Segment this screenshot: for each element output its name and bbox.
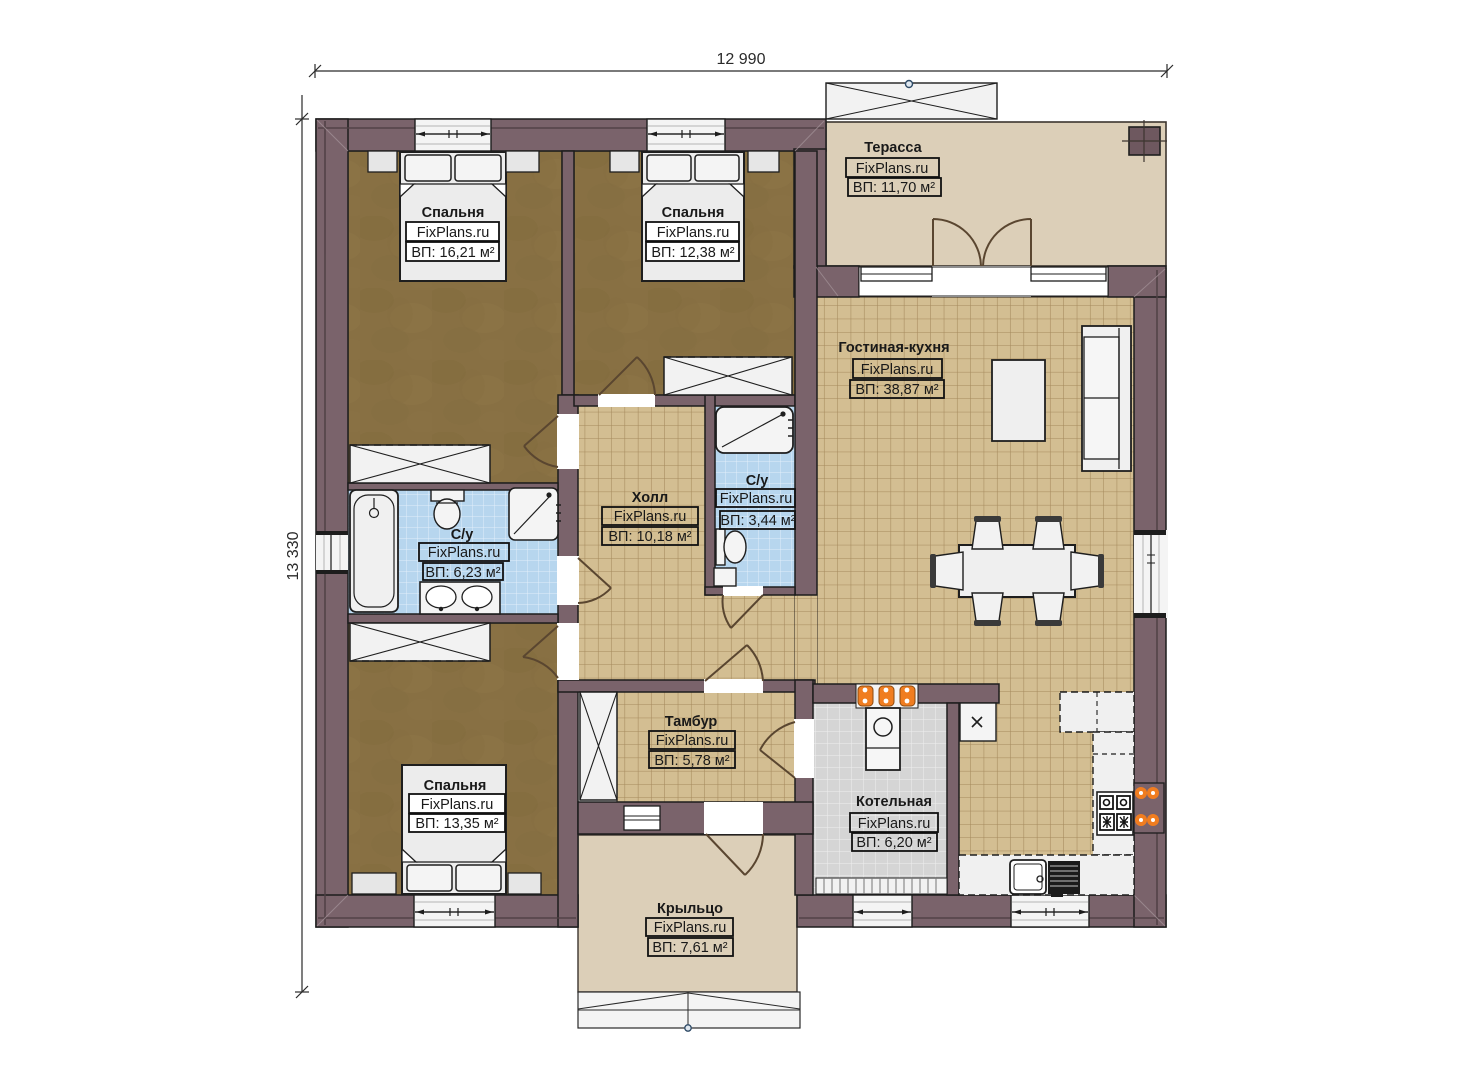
svg-text:ВП: 6,20 м²: ВП: 6,20 м² bbox=[856, 835, 931, 851]
svg-text:Холл: Холл bbox=[632, 490, 668, 506]
svg-text:ВП: 7,61 м²: ВП: 7,61 м² bbox=[652, 940, 727, 956]
svg-text:FixPlans.ru: FixPlans.ru bbox=[421, 797, 494, 813]
svg-text:FixPlans.ru: FixPlans.ru bbox=[856, 161, 929, 177]
svg-text:ВП: 3,44 м²: ВП: 3,44 м² bbox=[720, 513, 795, 529]
svg-text:ВП: 10,18 м²: ВП: 10,18 м² bbox=[608, 529, 691, 545]
svg-text:ВП: 16,21 м²: ВП: 16,21 м² bbox=[411, 245, 494, 261]
svg-text:FixPlans.ru: FixPlans.ru bbox=[861, 362, 934, 378]
svg-text:FixPlans.ru: FixPlans.ru bbox=[428, 545, 501, 561]
svg-text:ВП: 12,38 м²: ВП: 12,38 м² bbox=[651, 245, 734, 261]
svg-text:FixPlans.ru: FixPlans.ru bbox=[858, 816, 931, 832]
svg-text:FixPlans.ru: FixPlans.ru bbox=[417, 225, 490, 241]
svg-text:FixPlans.ru: FixPlans.ru bbox=[720, 491, 793, 507]
svg-text:ВП: 13,35 м²: ВП: 13,35 м² bbox=[415, 816, 498, 832]
svg-text:С/у: С/у bbox=[451, 527, 474, 543]
svg-text:FixPlans.ru: FixPlans.ru bbox=[656, 733, 729, 749]
svg-text:Спальня: Спальня bbox=[662, 205, 725, 221]
svg-text:Гостиная-кухня: Гостиная-кухня bbox=[838, 340, 949, 356]
svg-text:ВП: 11,70 м²: ВП: 11,70 м² bbox=[853, 180, 935, 196]
svg-text:Крыльцо: Крыльцо bbox=[657, 901, 723, 917]
svg-text:Спальня: Спальня bbox=[424, 778, 487, 794]
svg-text:FixPlans.ru: FixPlans.ru bbox=[657, 225, 730, 241]
svg-text:С/у: С/у bbox=[746, 473, 769, 489]
svg-text:ВП: 5,78 м²: ВП: 5,78 м² bbox=[654, 753, 729, 769]
svg-text:FixPlans.ru: FixPlans.ru bbox=[614, 509, 687, 525]
svg-text:Тамбур: Тамбур bbox=[665, 714, 718, 730]
svg-text:FixPlans.ru: FixPlans.ru bbox=[654, 920, 727, 936]
svg-text:Терасса: Терасса bbox=[864, 140, 922, 156]
svg-text:13 330: 13 330 bbox=[285, 531, 302, 580]
svg-text:Спальня: Спальня bbox=[422, 205, 485, 221]
svg-text:12 990: 12 990 bbox=[717, 51, 766, 68]
svg-text:ВП: 6,23 м²: ВП: 6,23 м² bbox=[425, 565, 500, 581]
svg-text:ВП: 38,87 м²: ВП: 38,87 м² bbox=[855, 382, 938, 398]
svg-text:Котельная: Котельная bbox=[856, 794, 932, 810]
